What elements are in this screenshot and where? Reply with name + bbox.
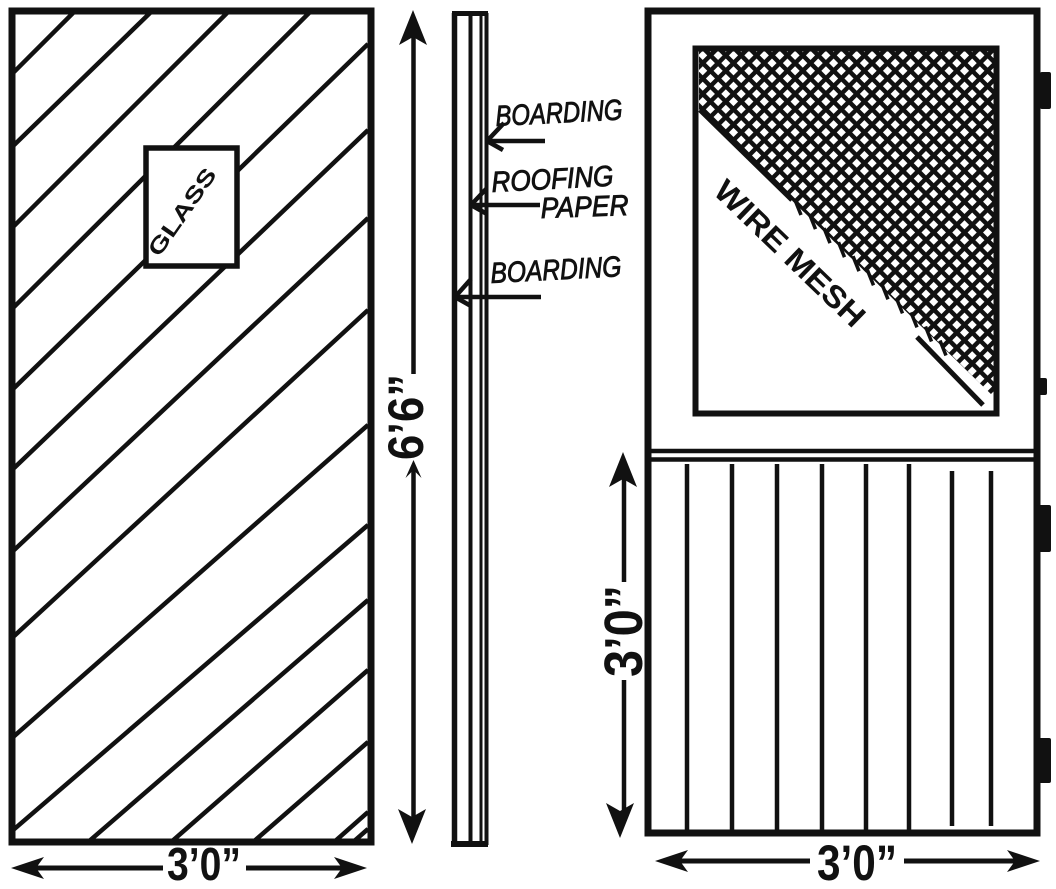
svg-text:3’0”: 3’0”: [167, 838, 241, 889]
svg-text:PAPER: PAPER: [540, 190, 629, 225]
svg-text:6’6”: 6’6”: [378, 374, 434, 460]
svg-text:BOARDING: BOARDING: [495, 94, 624, 133]
svg-text:BOARDING: BOARDING: [490, 251, 622, 290]
svg-text:3’0”: 3’0”: [594, 585, 654, 677]
svg-text:3’0”: 3’0”: [817, 835, 897, 889]
